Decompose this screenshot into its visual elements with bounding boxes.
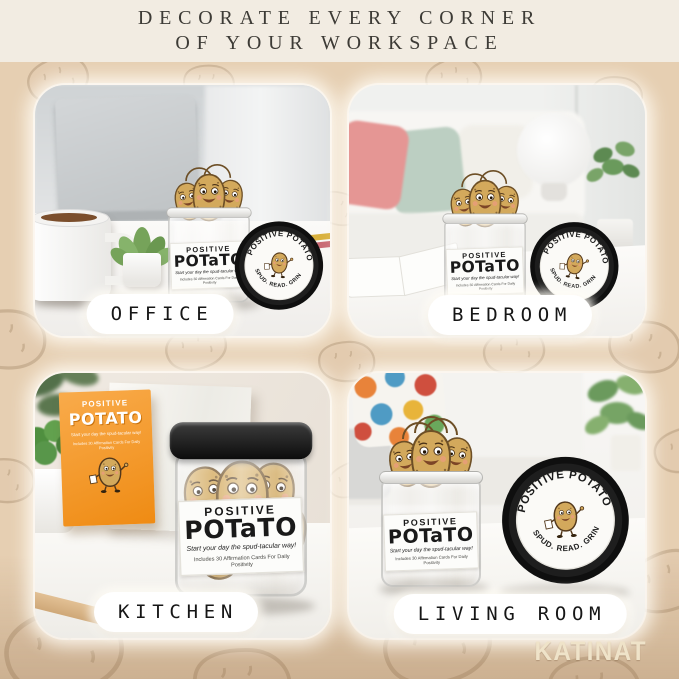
jar-label-subtext: Includes 30 Affirmation Cards For Daily … bbox=[386, 553, 476, 566]
product-collage: DECORATE EVERY CORNER OF YOUR WORKSPACE bbox=[0, 0, 679, 679]
jar-label-name: POTaTO bbox=[181, 514, 301, 545]
plant-pot bbox=[123, 253, 161, 287]
brand-logo: KATINAT bbox=[535, 636, 647, 667]
jar-label-name: POTaTO bbox=[448, 257, 522, 276]
jar-lid: POSITIVE POTATO SPUD. READ. GRIN bbox=[495, 450, 636, 591]
jar-rim bbox=[379, 471, 483, 484]
room-label-kitchen: KITCHEN bbox=[94, 592, 258, 632]
jar-lid-label: POSITIVE POTATO SPUD. READ. GRIN bbox=[495, 450, 636, 591]
product-jar-lidded: POSITIVE POTaTO Start your day the spud-… bbox=[175, 417, 307, 597]
box-name: POTATO bbox=[68, 408, 142, 430]
box-brand: POSITIVE bbox=[82, 398, 129, 409]
page-title-line2: OF YOUR WORKSPACE bbox=[175, 31, 503, 56]
box-subtext: Includes 30 Affirmation Cards For Daily … bbox=[71, 439, 141, 451]
product-jar: POSITIVE POTaTO Start your day the spud-… bbox=[381, 451, 481, 587]
room-label-office: OFFICE bbox=[87, 294, 234, 334]
product-jar: POSITIVE POTaTO Start your day the spud-… bbox=[444, 197, 526, 309]
box-tagline: Start your day the spud-tacular way! bbox=[71, 430, 141, 437]
jar-label: POSITIVE POTaTO Start your day the spud-… bbox=[383, 511, 479, 571]
jar-label: POSITIVE POTaTO Start your day the spud-… bbox=[446, 247, 525, 296]
product-box: POSITIVE POTATO Start your day the spud-… bbox=[59, 389, 156, 526]
header-banner: DECORATE EVERY CORNER OF YOUR WORKSPACE bbox=[0, 0, 679, 62]
lamp-base bbox=[541, 183, 567, 201]
jar-rim bbox=[442, 213, 527, 224]
jar-label-subtext: Includes 30 Affirmation Cards For Daily … bbox=[449, 281, 523, 292]
jar-label-name: POTaTO bbox=[385, 524, 476, 547]
page-title-line1: DECORATE EVERY CORNER bbox=[138, 6, 541, 31]
room-label-living-room: LIVING ROOM bbox=[394, 594, 627, 634]
jar-label-subtext: Includes 30 Affirmation Cards For Daily … bbox=[182, 552, 301, 569]
houseplant bbox=[585, 133, 643, 193]
coffee-surface bbox=[41, 213, 97, 222]
jar-black-lid-top bbox=[170, 422, 313, 459]
book-page-left bbox=[349, 256, 406, 298]
jar-label: POSITIVE POTaTO Start your day the spud-… bbox=[178, 497, 305, 577]
jar-lid-label: POSITIVE POTATO SPUD. READ. GRIN bbox=[228, 215, 329, 316]
room-label-bedroom: BEDROOM bbox=[428, 295, 592, 335]
jar-lid: POSITIVE POTATO SPUD. READ. GRIN bbox=[228, 215, 329, 316]
potato-mascot-icon bbox=[87, 453, 129, 500]
sphere-lamp bbox=[517, 113, 591, 187]
